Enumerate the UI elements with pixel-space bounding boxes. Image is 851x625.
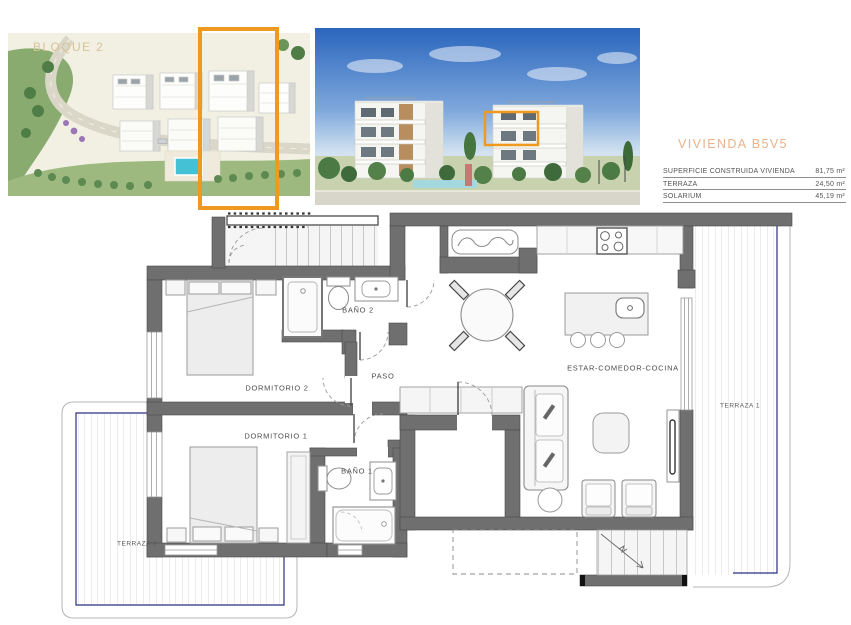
armchair: [582, 480, 615, 517]
room-label-terraza1: TERRAZA 1: [720, 403, 760, 410]
aerial-photo: [8, 33, 310, 196]
spec-label: SOLARIUM: [663, 193, 702, 200]
street-road: [315, 191, 640, 205]
laundry-sink: [452, 230, 518, 254]
brochure-page: BLOQUE 2 VIVIENDA B5V5 SUPERFICIE CONSTR…: [0, 0, 851, 625]
room-label-terraza2: TERRAZA 2: [117, 541, 157, 548]
hall-closet: [400, 387, 522, 413]
spec-value: 81,75 m²: [815, 168, 845, 175]
sink-1: [370, 462, 396, 500]
kitchen-counter: [537, 226, 683, 254]
spec-table: SUPERFICIE CONSTRUIDA VIVIENDA 81,75 m² …: [663, 165, 846, 203]
plan-scene: [0, 0, 851, 625]
aerial-caption: BLOQUE 2: [33, 40, 104, 54]
street-building-left: [355, 98, 443, 178]
room-label-bano1: BAÑO 1: [341, 467, 373, 476]
stool: [610, 333, 625, 348]
street-photo: [315, 28, 640, 205]
spec-row: SOLARIUM 45,19 m²: [663, 190, 846, 203]
sofa: [524, 386, 568, 490]
spec-value: 24,50 m²: [815, 181, 845, 188]
entry-stairs: [225, 214, 378, 267]
bed-dormitorio-2: [166, 280, 276, 375]
spec-label: TERRAZA: [663, 181, 697, 188]
coffee-table: [593, 413, 629, 453]
stool: [591, 333, 606, 348]
room-label-dormitorio2: DORMITORIO 2: [245, 384, 308, 393]
armchair: [622, 480, 656, 517]
side-table: [538, 488, 562, 512]
spec-row: TERRAZA 24,50 m²: [663, 178, 846, 191]
projection-dashed: [453, 530, 577, 574]
wardrobe-dormitorio-1: [287, 452, 310, 543]
aerial-pool: [175, 158, 202, 175]
spec-value: 45,19 m²: [815, 193, 845, 200]
stool: [571, 333, 586, 348]
room-label-bano2: BAÑO 2: [342, 306, 374, 315]
room-label-paso: PASO: [371, 372, 394, 381]
spec-label: SUPERFICIE CONSTRUIDA VIVIENDA: [663, 168, 795, 175]
room-label-dormitorio1: DORMITORIO 1: [244, 432, 307, 441]
dining-table: [449, 280, 524, 350]
street-red-path: [465, 164, 472, 186]
bathtub: [333, 507, 395, 544]
bed-dormitorio-1: [167, 447, 278, 543]
sink-2: [355, 277, 398, 301]
bathroom-2-fixtures: [283, 277, 398, 337]
floorplan: [62, 213, 792, 618]
aerial-car: [158, 139, 167, 144]
tv-unit: [667, 410, 679, 482]
spec-row: SUPERFICIE CONSTRUIDA VIVIENDA 81,75 m²: [663, 165, 846, 178]
unit-title: VIVIENDA B5V5: [678, 137, 788, 151]
stove: [597, 228, 627, 254]
kitchen-island: [565, 293, 648, 348]
room-label-estar: ESTAR-COMEDOR-COCINA: [567, 364, 679, 373]
